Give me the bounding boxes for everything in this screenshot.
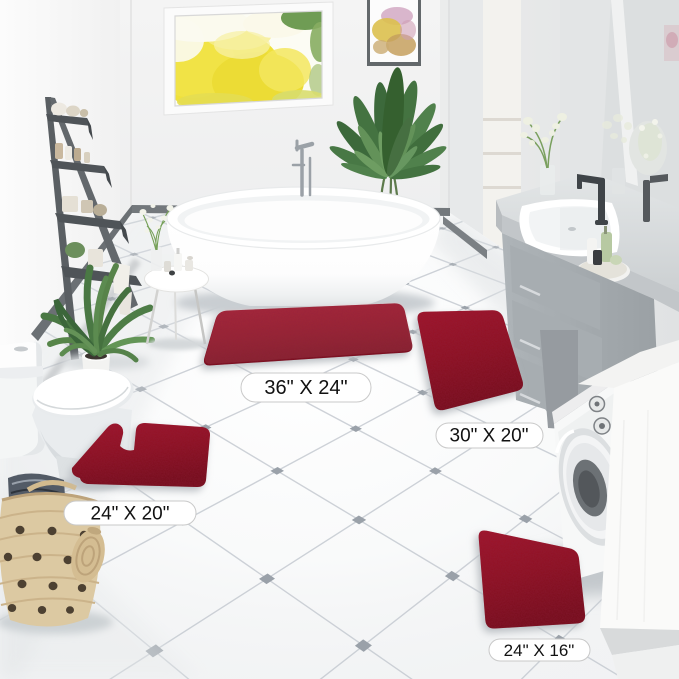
- svg-text:24" X 16": 24" X 16": [504, 641, 575, 660]
- svg-text:30" X 20": 30" X 20": [450, 426, 529, 447]
- svg-text:36" X 24": 36" X 24": [264, 377, 347, 399]
- svg-text:24" X 20": 24" X 20": [91, 504, 170, 525]
